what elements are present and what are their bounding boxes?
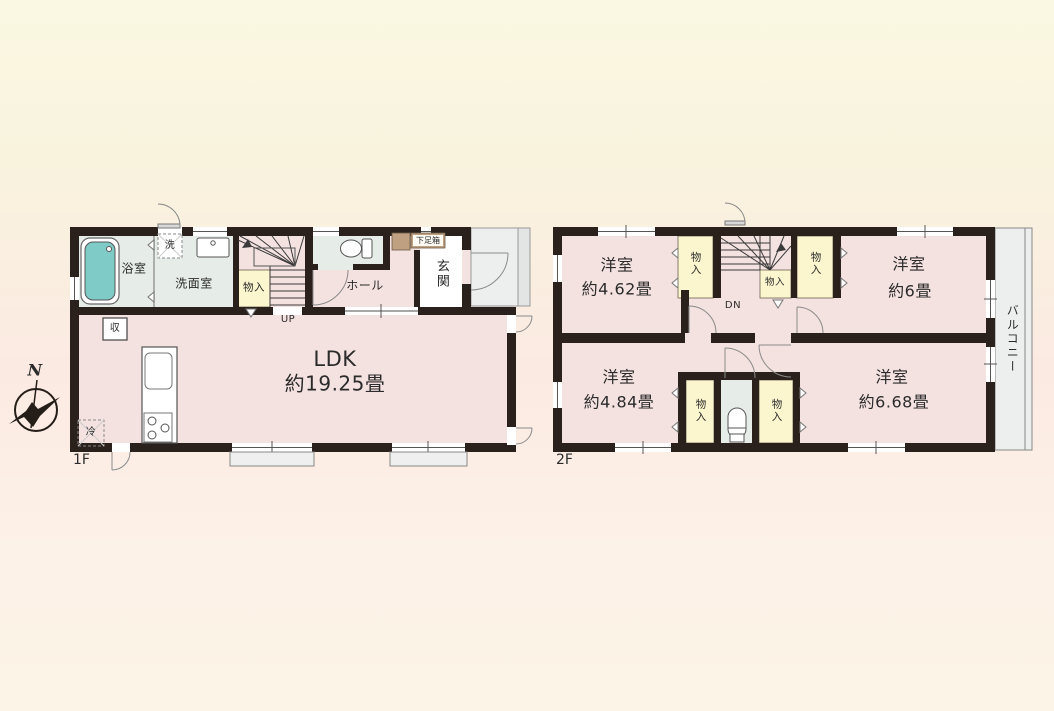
room-size-2f-2: 約6畳 [888,284,932,301]
floor1-plan: 浴室 洗 洗面室 物入 UP ホール 下足箱 玄関 LDK 約19.25畳 収 … [70,212,535,472]
room-size-ldk: 約19.25畳 [285,374,386,395]
room-label-entrance: 玄関 [434,259,448,289]
label-closet-2f-top-left: 物入 [689,252,700,277]
toilet-2f [728,408,746,442]
floorplan-page: N [0,0,1054,711]
compass-north-label: N [27,363,42,380]
floor1-tag: 1F [73,452,90,468]
floor2-plan: 洋室 約4.62畳 洋室 約6畳 洋室 約4.84畳 洋室 約6.68畳 物入 … [548,212,1040,472]
label-closet-2f-bottom-right: 物入 [770,399,781,424]
room-size-2f-3: 約4.84畳 [584,395,655,412]
room-label-2f-2: 洋室 [892,257,925,274]
label-refrigerator: 冷 [86,428,97,439]
label-closet-2f-bottom-left: 物入 [694,399,705,424]
label-storage: 収 [110,324,121,335]
toilet-1f [341,239,373,258]
room-label-2f-4: 洋室 [875,370,908,387]
label-closet-2f-understairs: 物入 [765,278,785,288]
label-closet-1f: 物入 [243,282,265,293]
room-label-hall: ホール [346,280,384,293]
room-label-bathroom: 浴室 [121,263,146,276]
room-size-2f-4: 約6.68畳 [859,395,930,412]
room-size-2f-1: 約4.62畳 [582,282,653,299]
room-label-washroom: 洗面室 [175,278,213,291]
floor1-window-sills [230,452,467,466]
room-label-2f-1: 洋室 [600,258,633,275]
label-balcony: バルコニー [1006,304,1019,374]
room-label-2f-3: 洋室 [602,370,635,387]
label-shoe-cabinet: 下足箱 [416,236,440,244]
label-washer: 洗 [165,241,176,252]
label-stairs-up: UP [281,315,295,326]
kitchen-counter [142,347,177,443]
label-closet-2f-top-right: 物入 [809,252,820,277]
floor2-tag: 2F [556,452,573,468]
bathtub [81,238,119,304]
compass: N [5,358,67,442]
wash-basin [197,238,229,257]
label-stairs-dn: DN [725,301,741,312]
room-label-ldk: LDK [313,348,356,370]
